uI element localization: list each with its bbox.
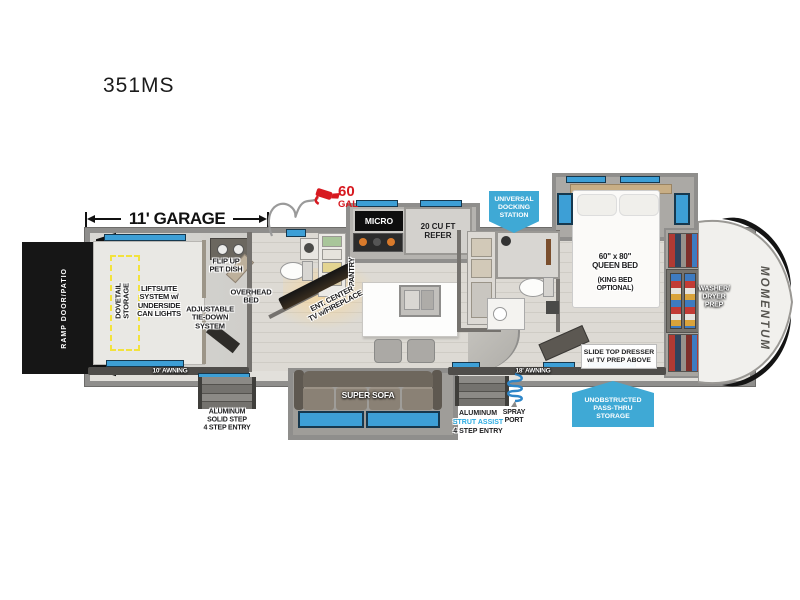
dresser-label-box: SLIDE TOP DRESSER w/ TV PREP ABOVE: [581, 344, 657, 369]
garage-top-window: [104, 234, 186, 241]
sofa-back: [303, 371, 433, 387]
momentum-brand-logo: MOMENTUM: [748, 248, 770, 368]
floorplan-canvas: 351MS RAMP DOOR/PATIO DOVETAIL STORAGE L…: [0, 0, 800, 600]
garage-dimension: 11' GARAGE: [85, 211, 269, 227]
main-step-line1: ALUMINUM: [453, 410, 503, 419]
half-bath-sink: [300, 238, 319, 260]
sofa-floor-window: [366, 411, 440, 428]
spray-port-label: SPRAY PORT: [503, 409, 525, 425]
super-sofa-label: SUPER SOFA: [342, 391, 395, 401]
garage-dimension-label: 11' GARAGE: [121, 209, 233, 229]
sofa-floor-window: [298, 411, 364, 428]
pet-dish-label: FLIP UP PET DISH: [210, 258, 243, 275]
microwave: MICRO: [353, 209, 405, 233]
main-step-line2: STRUT ASSIST: [453, 419, 503, 428]
main-awning-label: 18' AWNING: [515, 367, 550, 374]
bath-hamper: [546, 301, 559, 314]
main-entry-steps: [455, 376, 509, 406]
bedroom-side-window: [674, 193, 690, 225]
garage-bottom-window: [106, 360, 184, 367]
refrigerator-label: 20 CU FT REFER: [421, 222, 456, 240]
king-option-label: (KING BED OPTIONAL): [597, 277, 634, 293]
shower-head: [501, 236, 511, 246]
sink-bowl: [304, 243, 314, 253]
bath-vanity: [487, 298, 525, 330]
bedroom-top-window: [566, 176, 606, 183]
ramp-door-label: RAMP DOOR/PATIO: [61, 268, 68, 349]
washer-dryer-label: WASHER/ DRYER PREP: [698, 285, 729, 308]
sofa-arm-right: [432, 370, 442, 410]
garage-awning-label: 10' AWNING: [152, 367, 187, 374]
dim-arrow-left-icon: [87, 215, 95, 223]
dresser-label: SLIDE TOP DRESSER w/ TV PREP ABOVE: [584, 349, 654, 365]
island-stool: [407, 339, 435, 363]
island-stool: [374, 339, 402, 363]
storage-bins: [670, 273, 682, 329]
storage-bins: [684, 273, 696, 329]
overhead-bed-label: OVERHEAD BED: [231, 289, 272, 306]
main-step-line3: 4 STEP ENTRY: [453, 428, 503, 437]
towel-bar: [546, 239, 551, 265]
pillow: [577, 194, 617, 216]
fuel-unit: GAL: [338, 199, 358, 210]
vanity-sink: [493, 307, 507, 321]
garage-entry-steps: [198, 377, 256, 409]
half-bath-toilet-tank: [302, 261, 313, 281]
fuel-amount: 60: [338, 183, 355, 200]
tie-down-label: ADJUSTABLE TIE-DOWN SYSTEM: [186, 305, 234, 330]
dovetail-label: DOVETAIL STORAGE: [115, 283, 132, 319]
kitchen-island: [362, 282, 458, 337]
pillow: [619, 194, 659, 216]
spray-port-hose-icon: [502, 372, 528, 408]
garage-step-label: ALUMINUM SOLID STEP 4 STEP ENTRY: [203, 408, 250, 431]
fuel-hose-icon: [262, 180, 340, 238]
bedroom-top-window: [620, 176, 660, 183]
range-cooktop: [353, 233, 403, 252]
island-sink: [399, 285, 441, 317]
bedroom-side-window: [557, 193, 573, 225]
bath-toilet-tank: [543, 277, 554, 297]
pet-dish-bowl: [233, 244, 244, 255]
kitchen-window: [420, 200, 462, 207]
pet-dish-bowl: [217, 244, 228, 255]
docking-station-badge: UNIVERSAL DOCKING STATION: [489, 191, 539, 233]
floorplan-title: 351MS: [103, 74, 175, 98]
refrigerator: 20 CU FT REFER: [404, 207, 472, 255]
main-step-label: ALUMINUM STRUT ASSIST 4 STEP ENTRY: [453, 410, 503, 436]
liftsuite-label: LIFTSUITE SYSTEM w/ UNDERSIDE CAN LIGHTS: [137, 285, 181, 319]
pass-thru-storage-badge: UNOBSTRUCTED PASS-THRU STORAGE: [572, 381, 654, 427]
shower: [496, 231, 560, 279]
kitchen-window: [356, 200, 398, 207]
queen-bed-label: 60" x 80" QUEEN BED: [592, 253, 638, 271]
